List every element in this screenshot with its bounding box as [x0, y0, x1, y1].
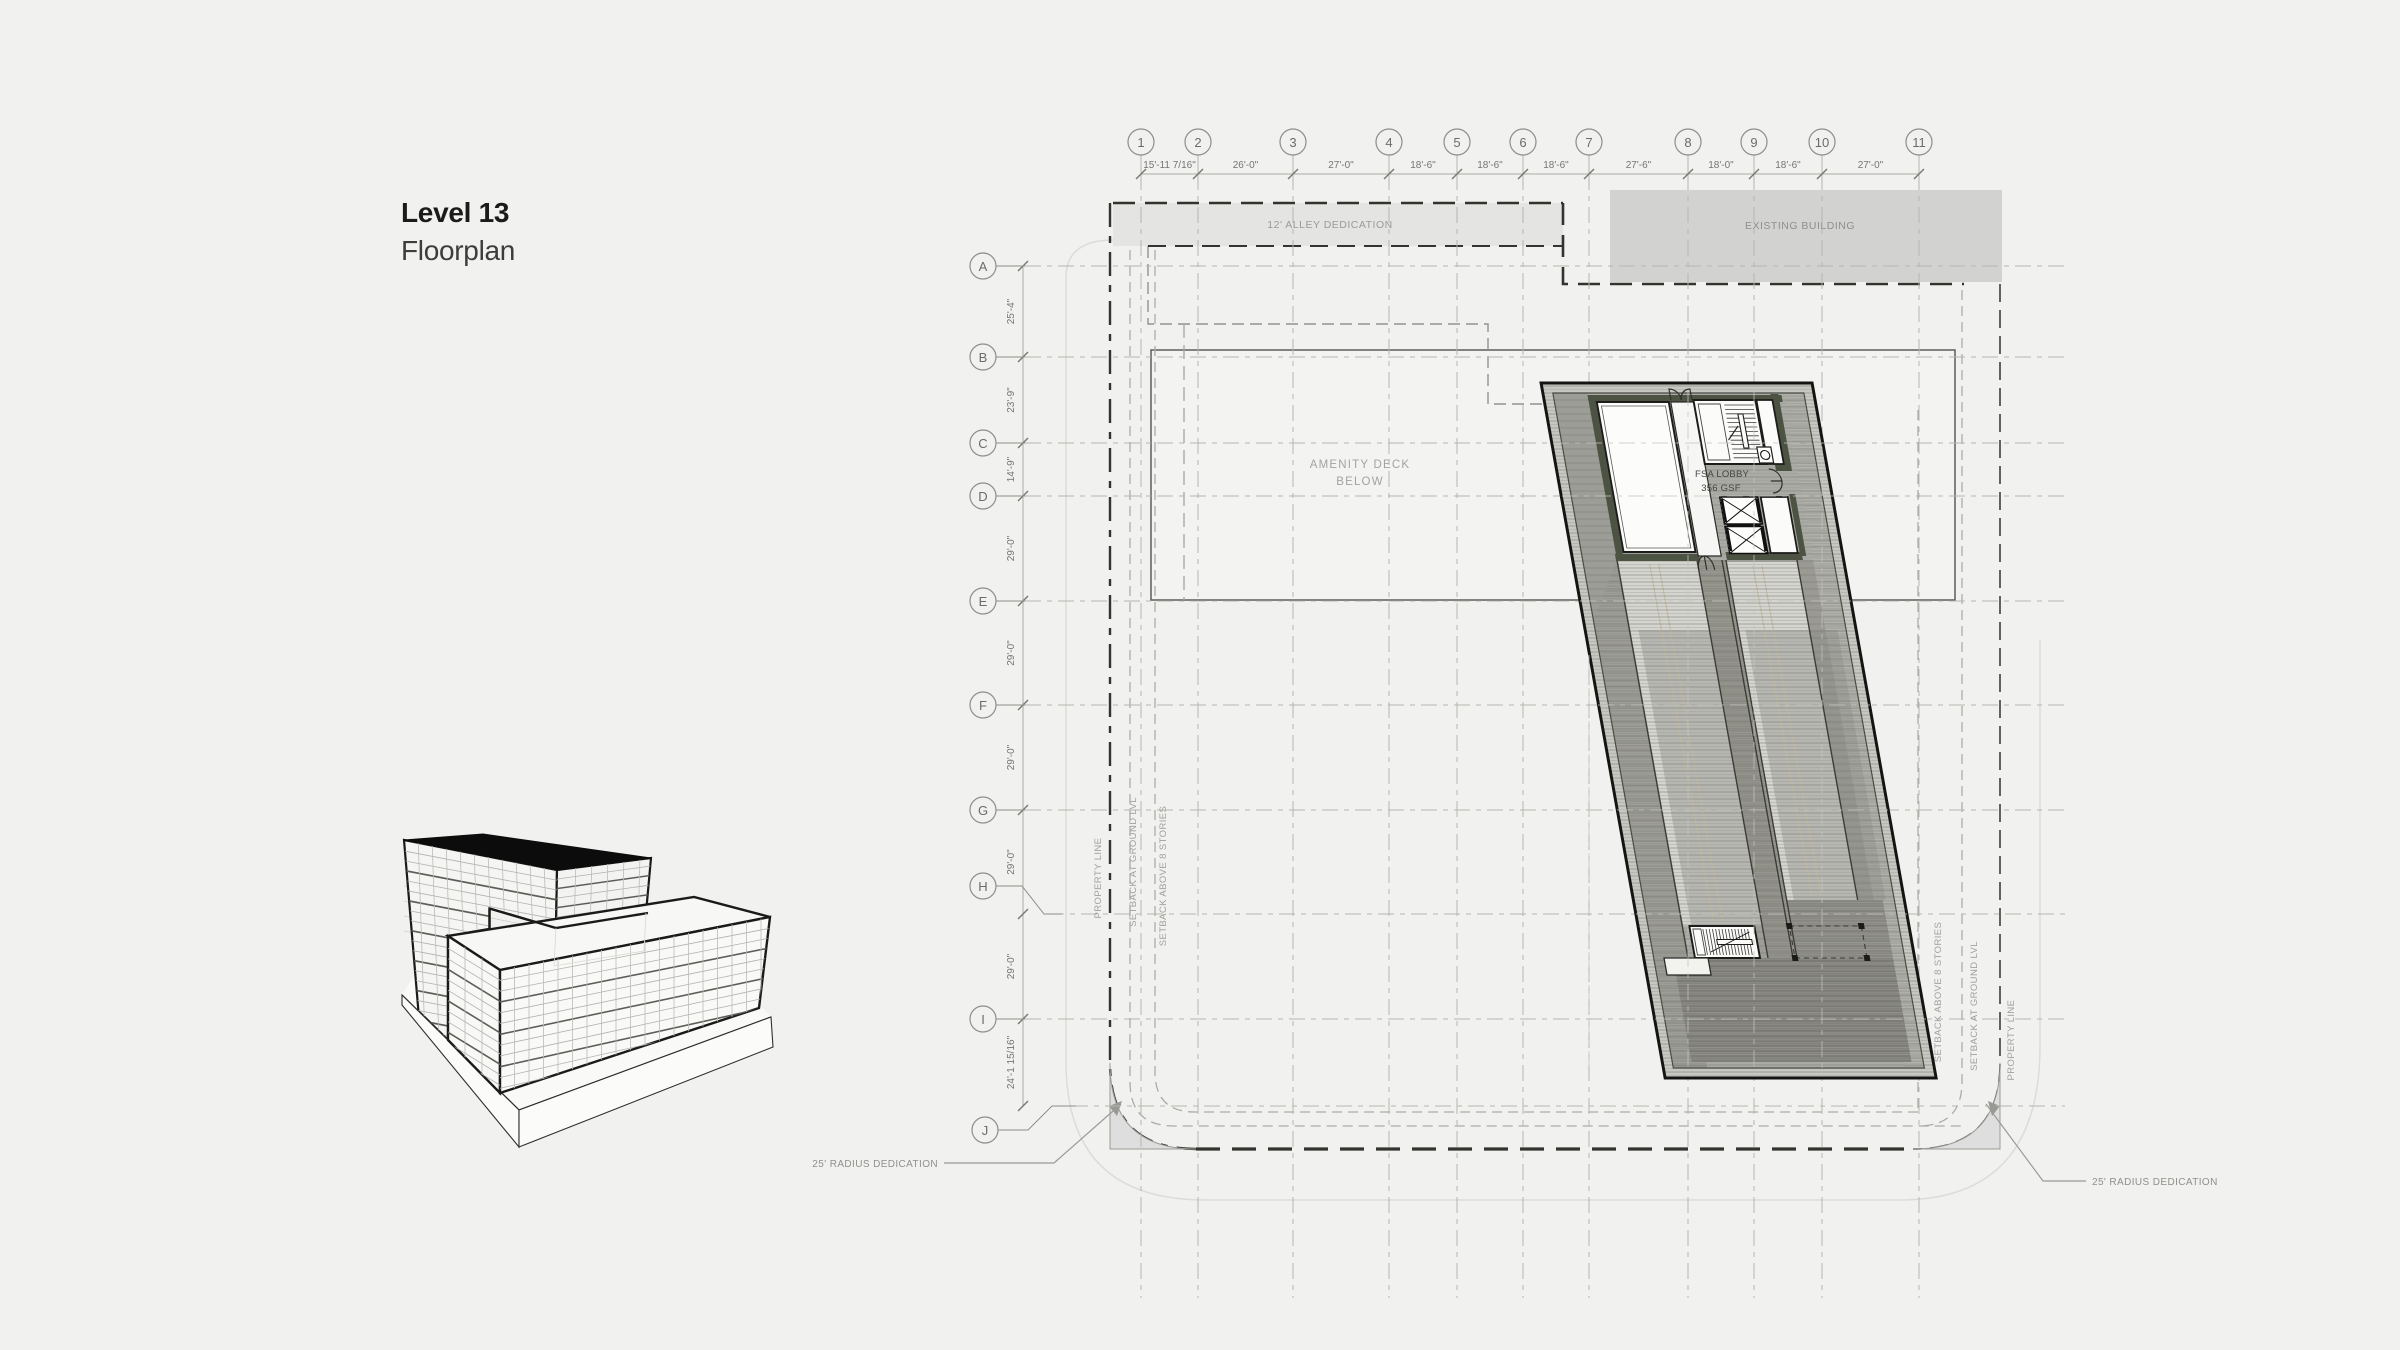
- svg-text:Level 13: Level 13: [401, 197, 509, 228]
- svg-text:4: 4: [1385, 135, 1392, 150]
- svg-text:29'-0": 29'-0": [1006, 849, 1017, 875]
- svg-text:C: C: [978, 436, 987, 451]
- svg-text:1: 1: [1137, 135, 1144, 150]
- svg-text:7: 7: [1585, 135, 1592, 150]
- svg-text:9: 9: [1750, 135, 1757, 150]
- svg-text:6: 6: [1519, 135, 1526, 150]
- svg-text:SETBACK AT GROUND LVL: SETBACK AT GROUND LVL: [1969, 941, 1980, 1071]
- svg-text:Floorplan: Floorplan: [401, 235, 515, 266]
- svg-text:10: 10: [1815, 135, 1829, 150]
- svg-text:F: F: [979, 698, 987, 713]
- svg-text:29'-0": 29'-0": [1006, 744, 1017, 770]
- svg-text:26'-0": 26'-0": [1233, 160, 1259, 171]
- svg-text:29'-0": 29'-0": [1006, 535, 1017, 561]
- svg-text:12' ALLEY DEDICATION: 12' ALLEY DEDICATION: [1267, 219, 1392, 231]
- svg-text:2: 2: [1194, 135, 1201, 150]
- svg-text:18'-6": 18'-6": [1477, 160, 1503, 171]
- svg-text:D: D: [978, 489, 987, 504]
- svg-text:27'-0": 27'-0": [1328, 160, 1354, 171]
- svg-text:BELOW: BELOW: [1336, 476, 1384, 488]
- svg-text:A: A: [979, 259, 988, 274]
- svg-text:29'-0": 29'-0": [1006, 640, 1017, 666]
- svg-text:14'-9": 14'-9": [1006, 456, 1017, 482]
- svg-text:18'-6": 18'-6": [1410, 160, 1436, 171]
- svg-text:25'-4": 25'-4": [1006, 298, 1017, 324]
- svg-text:27'-6": 27'-6": [1626, 160, 1652, 171]
- svg-text:SETBACK ABOVE 8 STORIES: SETBACK ABOVE 8 STORIES: [1933, 922, 1944, 1063]
- svg-text:23'-9": 23'-9": [1006, 387, 1017, 413]
- svg-text:5: 5: [1453, 135, 1460, 150]
- svg-text:24'-1 15/16": 24'-1 15/16": [1006, 1035, 1017, 1089]
- svg-text:356 GSF: 356 GSF: [1701, 483, 1740, 494]
- svg-text:AMENITY DECK: AMENITY DECK: [1310, 459, 1410, 471]
- svg-text:EXISTING BUILDING: EXISTING BUILDING: [1745, 220, 1855, 232]
- svg-text:18'-6": 18'-6": [1543, 160, 1569, 171]
- svg-text:25' RADIUS DEDICATION: 25' RADIUS DEDICATION: [2092, 1177, 2218, 1188]
- svg-text:3: 3: [1289, 135, 1296, 150]
- svg-text:H: H: [978, 879, 987, 894]
- svg-text:27'-0": 27'-0": [1858, 160, 1884, 171]
- svg-text:18'-0": 18'-0": [1708, 160, 1734, 171]
- svg-text:E: E: [979, 594, 988, 609]
- svg-text:15'-11 7/16": 15'-11 7/16": [1143, 160, 1196, 171]
- svg-text:G: G: [978, 803, 988, 818]
- svg-text:SETBACK AT GROUND LVL: SETBACK AT GROUND LVL: [1128, 797, 1139, 927]
- svg-text:18'-6": 18'-6": [1775, 160, 1801, 171]
- svg-text:I: I: [981, 1012, 985, 1027]
- svg-text:J: J: [982, 1123, 989, 1138]
- svg-text:PROPERTY LINE: PROPERTY LINE: [2006, 1000, 2017, 1081]
- svg-text:11: 11: [1912, 135, 1926, 150]
- svg-text:SETBACK ABOVE 8 STORIES: SETBACK ABOVE 8 STORIES: [1158, 806, 1169, 947]
- svg-text:FSA LOBBY: FSA LOBBY: [1695, 469, 1750, 480]
- svg-text:B: B: [979, 350, 988, 365]
- svg-text:29'-0": 29'-0": [1006, 953, 1017, 979]
- svg-text:PROPERTY LINE: PROPERTY LINE: [1093, 838, 1104, 919]
- svg-text:25' RADIUS DEDICATION: 25' RADIUS DEDICATION: [812, 1159, 938, 1170]
- svg-text:8: 8: [1684, 135, 1691, 150]
